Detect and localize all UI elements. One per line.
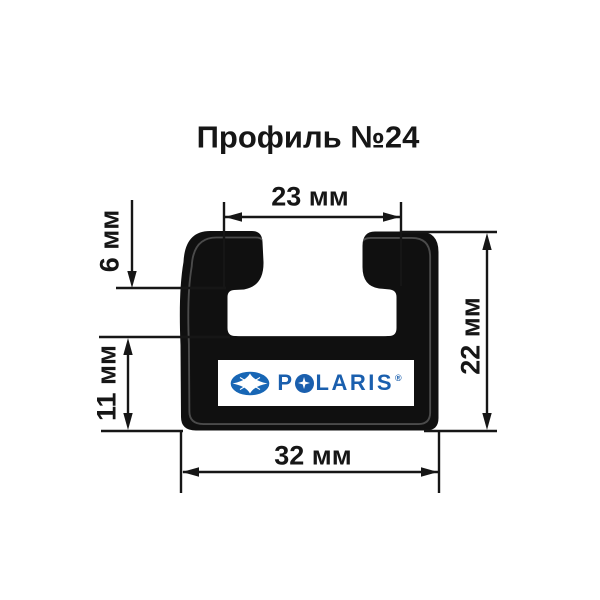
arrowhead-32mm-left <box>182 467 199 476</box>
arrowhead-23mm-right <box>383 212 400 221</box>
polaris-ellipse-star-icon <box>230 371 270 396</box>
arrowhead-6mm-down <box>127 271 136 288</box>
wordmark-rest: LARIS <box>316 372 395 394</box>
dimension-label-lower-wall-height: 11 мм <box>94 345 121 421</box>
arrowhead-32mm-right <box>421 467 438 476</box>
arrowhead-22mm-down <box>482 413 491 430</box>
profile-drawing <box>0 0 600 600</box>
wordmark-first-letter: P <box>277 372 294 394</box>
arrowhead-11mm-up <box>123 338 132 355</box>
polaris-wordmark: P LARIS ® <box>277 372 401 394</box>
dimension-label-lip-height: 6 мм <box>97 210 124 272</box>
dimension-label-bottom-width: 32 мм <box>274 443 351 470</box>
dimension-label-top-width: 23 мм <box>271 184 348 211</box>
arrowhead-22mm-up <box>482 233 491 250</box>
registered-trademark-mark: ® <box>395 374 402 383</box>
dimension-label-overall-height: 22 мм <box>458 297 485 374</box>
polaris-logo-plate: P LARIS ® <box>218 360 414 406</box>
arrowhead-23mm-left <box>225 212 242 221</box>
polaris-o-star-icon <box>295 374 314 393</box>
diagram-title: Профиль №24 <box>197 122 420 153</box>
profile-diagram-canvas: Профиль №24 23 мм 6 мм 11 мм 22 мм 32 мм… <box>0 0 600 600</box>
arrowhead-11mm-down <box>123 413 132 430</box>
